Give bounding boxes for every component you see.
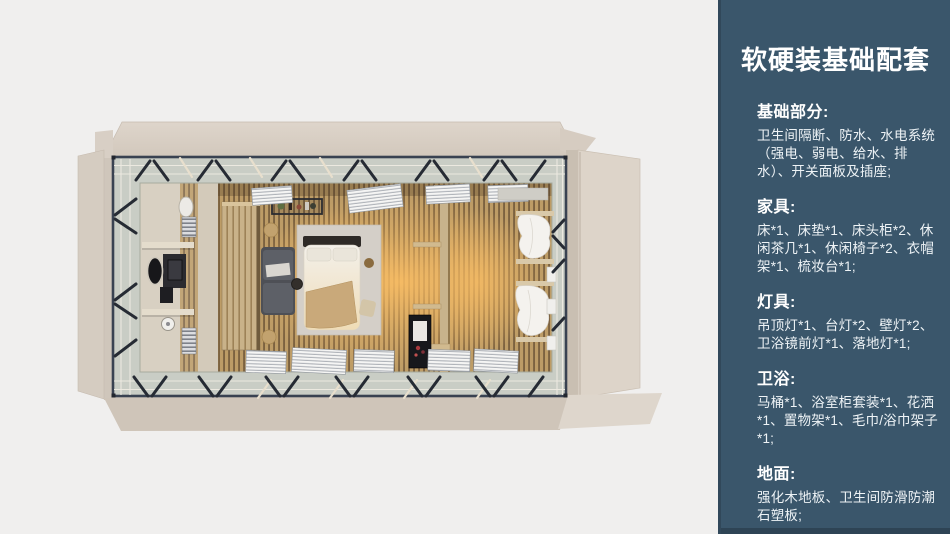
towel-rail-upper (182, 217, 196, 237)
section-furniture-body: 床*1、床垫*1、床头柜*2、休闲茶几*1、休闲椅子*2、衣帽架*1、梳妆台*1… (757, 222, 938, 276)
bench (498, 188, 548, 200)
section-furniture: 家具: 床*1、床垫*1、床头柜*2、休闲茶几*1、休闲椅子*2、衣帽架*1、梳… (757, 197, 938, 276)
vanity-sink (168, 260, 182, 280)
curtain-lower (516, 286, 549, 336)
vanity-stool (160, 287, 173, 303)
wall-box-3 (547, 336, 556, 350)
panel-sections: 基础部分: 卫生间隔断、防水、水电系统（强电、弱电、给水、排水）、开关面板及插座… (741, 102, 938, 525)
shell-bottom-flap (104, 395, 568, 431)
shell-top-flap (104, 122, 578, 157)
floorplan-render (0, 0, 718, 534)
toilet (179, 197, 193, 217)
wardrobe (222, 202, 260, 350)
curtain-upper (518, 215, 550, 259)
towel-rail-lower (182, 328, 196, 354)
pouf-bottom (262, 330, 276, 344)
floorplan-svg (0, 0, 718, 534)
section-basics-heading: 基础部分: (757, 102, 938, 123)
shell-bottom-right-wedge (558, 393, 662, 429)
section-basics-body: 卫生间隔断、防水、水电系统（强电、弱电、给水、排水）、开关面板及插座; (757, 127, 938, 181)
divider-shelf-lower (413, 304, 441, 309)
section-bath-body: 马桶*1、浴室柜套装*1、花洒*1、置物架*1、毛巾/浴巾架子*1; (757, 394, 938, 448)
shell-right-strip (566, 150, 578, 398)
section-flooring-heading: 地面: (757, 464, 938, 485)
shell-left-flap (78, 150, 104, 399)
section-lighting-heading: 灯具: (757, 292, 938, 313)
divider-shelf-upper (413, 242, 441, 247)
pillow-right (333, 248, 357, 261)
section-bath-heading: 卫浴: (757, 369, 938, 390)
bed (297, 225, 381, 335)
pillow-left (307, 248, 331, 261)
slide: 软硬装基础配套 基础部分: 卫生间隔断、防水、水电系统（强电、弱电、给水、排水）… (0, 0, 950, 534)
section-basics: 基础部分: 卫生间隔断、防水、水电系统（强电、弱电、给水、排水）、开关面板及插座… (757, 102, 938, 181)
bathroom-shelf-lower (142, 309, 194, 315)
wall-box-2 (547, 299, 556, 314)
vanity-mirror (148, 258, 163, 285)
pouf-top (264, 223, 278, 237)
section-lighting-body: 吊顶灯*1、台灯*2、壁灯*2、卫浴镜前灯*1、落地灯*1; (757, 317, 938, 353)
section-flooring-body: 强化木地板、卫生间防滑防潮石塑板; (757, 489, 938, 525)
shell-right-flap (578, 150, 640, 398)
info-panel: 软硬装基础配套 基础部分: 卫生间隔断、防水、水电系统（强电、弱电、给水、排水）… (718, 0, 950, 534)
decor-plant (364, 258, 374, 268)
side-table (292, 279, 303, 290)
bathroom-shelf-upper (142, 242, 194, 248)
section-flooring: 地面: 强化木地板、卫生间防滑防潮石塑板; (757, 464, 938, 525)
section-furniture-heading: 家具: (757, 197, 938, 218)
panel-title: 软硬装基础配套 (741, 44, 938, 76)
section-bath: 卫浴: 马桶*1、浴室柜套装*1、花洒*1、置物架*1、毛巾/浴巾架子*1; (757, 369, 938, 448)
section-lighting: 灯具: 吊顶灯*1、台灯*2、壁灯*2、卫浴镜前灯*1、落地灯*1; (757, 292, 938, 353)
